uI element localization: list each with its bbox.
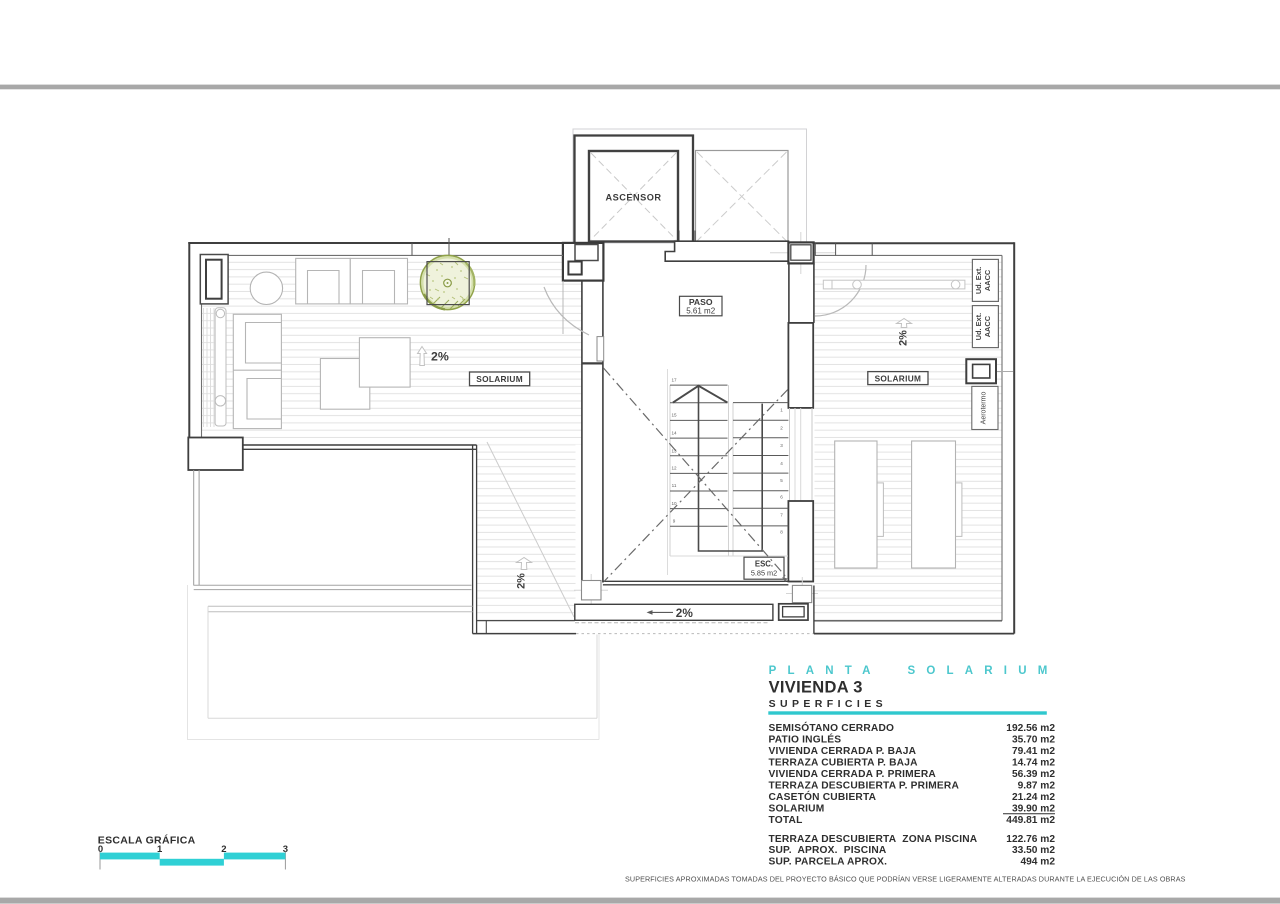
svg-text:TERRAZA DESCUBIERTA P. PRIMERA: TERRAZA DESCUBIERTA P. PRIMERA: [769, 781, 960, 792]
svg-text:15: 15: [671, 412, 677, 417]
svg-text:12: 12: [671, 465, 677, 470]
svg-text:17: 17: [671, 378, 677, 383]
svg-text:TERRAZA CUBIERTA P. BAJA: TERRAZA CUBIERTA P. BAJA: [769, 758, 919, 769]
svg-text:Ud. Ext.: Ud. Ext.: [974, 267, 983, 295]
svg-text:14: 14: [671, 430, 677, 435]
svg-text:449.81 m2: 449.81 m2: [1006, 815, 1055, 826]
svg-text:SEMISÓTANO CERRADO: SEMISÓTANO CERRADO: [769, 721, 895, 734]
svg-text:SUPERFICIES: SUPERFICIES: [769, 698, 887, 710]
svg-text:TOTAL: TOTAL: [769, 815, 803, 826]
svg-text:3: 3: [780, 443, 783, 448]
svg-text:VIVIENDA 3: VIVIENDA 3: [769, 678, 863, 696]
svg-text:AACC: AACC: [983, 315, 992, 337]
svg-text:494 m2: 494 m2: [1020, 856, 1055, 867]
svg-text:Aerotermo: Aerotermo: [981, 392, 988, 425]
svg-text:35.70 m2: 35.70 m2: [1012, 735, 1055, 746]
svg-text:VIVIENDA CERRADA P. BAJA: VIVIENDA CERRADA P. BAJA: [769, 746, 917, 757]
svg-text:5: 5: [780, 478, 783, 483]
svg-text:33.50 m2: 33.50 m2: [1012, 845, 1055, 856]
svg-text:TERRAZA DESCUBIERTA ZONA PISC: TERRAZA DESCUBIERTA ZONA PISCINA: [769, 834, 978, 845]
svg-text:CASETÓN CUBIERTA: CASETÓN CUBIERTA: [769, 790, 877, 803]
svg-text:122.76 m2: 122.76 m2: [1006, 834, 1055, 845]
svg-text:SOLARIUM: SOLARIUM: [875, 373, 922, 383]
svg-text:5.61 m2: 5.61 m2: [686, 307, 715, 316]
svg-text:10: 10: [671, 501, 677, 506]
svg-text:8: 8: [780, 529, 783, 534]
svg-text:21.24 m2: 21.24 m2: [1012, 792, 1055, 803]
svg-text:PLANTA SOLARIUM: PLANTA SOLARIUM: [769, 665, 1059, 677]
svg-text:ASCENSOR: ASCENSOR: [605, 193, 661, 203]
svg-text:6: 6: [780, 495, 783, 500]
svg-text:Ud. Ext.: Ud. Ext.: [974, 313, 983, 341]
svg-text:VIVIENDA CERRADA P. PRIMERA: VIVIENDA CERRADA P. PRIMERA: [769, 769, 937, 780]
svg-text:2%: 2%: [431, 349, 449, 363]
svg-text:7: 7: [780, 513, 783, 518]
svg-text:AACC: AACC: [983, 269, 992, 291]
svg-text:5.85 m2: 5.85 m2: [751, 569, 777, 578]
svg-text:SOLARIUM: SOLARIUM: [769, 804, 825, 815]
svg-text:2%: 2%: [516, 573, 528, 589]
svg-text:4: 4: [780, 461, 783, 466]
svg-text:SUP. APROX. PISCINA: SUP. APROX. PISCINA: [769, 845, 887, 856]
svg-text:2: 2: [780, 425, 783, 430]
svg-text:14.74 m2: 14.74 m2: [1012, 758, 1055, 769]
svg-text:11: 11: [672, 483, 677, 488]
svg-text:PASO: PASO: [689, 297, 713, 307]
svg-text:ESCALA GRÁFICA: ESCALA GRÁFICA: [98, 834, 196, 847]
svg-text:SUP. PARCELA APROX.: SUP. PARCELA APROX.: [769, 856, 888, 867]
svg-text:39.90 m2: 39.90 m2: [1012, 804, 1055, 815]
svg-text:1: 1: [780, 408, 783, 413]
svg-text:SUPERFICIES APROXIMADAS TOMADA: SUPERFICIES APROXIMADAS TOMADAS DEL PROY…: [625, 875, 1186, 884]
svg-text:SOLARIUM: SOLARIUM: [476, 374, 523, 384]
svg-text:9.87 m2: 9.87 m2: [1018, 781, 1056, 792]
svg-text:2%: 2%: [898, 330, 910, 346]
svg-text:9: 9: [673, 519, 676, 524]
svg-text:PATIO INGLÉS: PATIO INGLÉS: [769, 733, 842, 746]
svg-text:56.39 m2: 56.39 m2: [1012, 769, 1055, 780]
svg-text:79.41 m2: 79.41 m2: [1012, 746, 1055, 757]
svg-text:ESC.: ESC.: [755, 559, 773, 568]
svg-text:2%: 2%: [676, 606, 694, 620]
svg-text:192.56 m2: 192.56 m2: [1006, 723, 1055, 734]
